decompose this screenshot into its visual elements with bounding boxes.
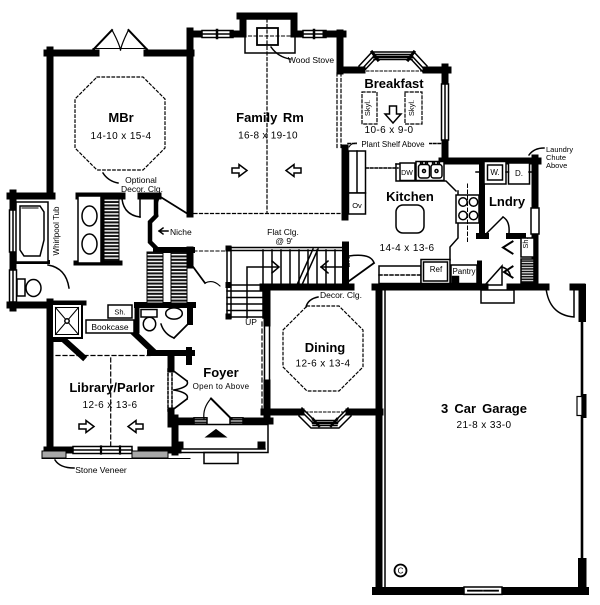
svg-text:10-6 x 9-0: 10-6 x 9-0	[364, 125, 413, 136]
svg-text:Family Rm: Family Rm	[236, 110, 304, 125]
svg-text:Foyer: Foyer	[203, 365, 238, 380]
svg-text:Pantry: Pantry	[452, 267, 475, 276]
svg-text:C: C	[398, 567, 404, 576]
svg-text:Stone Veneer: Stone Veneer	[75, 465, 127, 475]
svg-text:Bookcase: Bookcase	[91, 322, 129, 332]
svg-text:Kitchen: Kitchen	[386, 189, 434, 204]
svg-text:Ref: Ref	[430, 265, 443, 274]
svg-text:@ 9': @ 9'	[275, 236, 293, 246]
svg-text:Dining: Dining	[305, 340, 345, 355]
svg-text:UP: UP	[245, 317, 257, 327]
svg-text:D.: D.	[515, 169, 523, 178]
svg-text:Ov: Ov	[352, 201, 362, 210]
svg-text:12-6 x 13-4: 12-6 x 13-4	[296, 359, 351, 370]
svg-text:Skyl.: Skyl.	[407, 100, 416, 116]
svg-text:16-8 x 19-10: 16-8 x 19-10	[238, 131, 298, 142]
svg-text:Whirlpool Tub: Whirlpool Tub	[52, 206, 61, 255]
svg-text:DW: DW	[401, 170, 413, 177]
svg-text:Plant Shelf Above: Plant Shelf Above	[361, 140, 425, 149]
svg-text:W.: W.	[490, 168, 499, 177]
svg-text:3 Car Garage: 3 Car Garage	[441, 401, 527, 416]
svg-text:Skyl.: Skyl.	[363, 100, 372, 116]
svg-text:Decor. Clg.: Decor. Clg.	[320, 290, 362, 300]
svg-text:14-4 x 13-6: 14-4 x 13-6	[380, 243, 435, 254]
svg-text:12-6 x 13-6: 12-6 x 13-6	[83, 400, 138, 411]
svg-text:Wood Stove: Wood Stove	[288, 55, 334, 65]
svg-text:Decor. Clg.: Decor. Clg.	[121, 184, 163, 194]
svg-text:14-10 x 15-4: 14-10 x 15-4	[91, 131, 152, 142]
svg-text:Lndry: Lndry	[489, 194, 526, 209]
svg-text:Open to Above: Open to Above	[193, 382, 250, 391]
svg-text:Sh.: Sh.	[521, 237, 530, 248]
svg-text:MBr: MBr	[108, 110, 133, 125]
svg-text:Breakfast: Breakfast	[364, 76, 424, 91]
svg-text:Sh.: Sh.	[114, 308, 125, 317]
svg-text:Niche: Niche	[170, 227, 192, 237]
svg-text:Library/Parlor: Library/Parlor	[69, 380, 154, 395]
svg-text:21-8 x 33-0: 21-8 x 33-0	[457, 420, 512, 431]
svg-text:DN: DN	[343, 257, 352, 268]
svg-text:Above: Above	[546, 161, 567, 170]
